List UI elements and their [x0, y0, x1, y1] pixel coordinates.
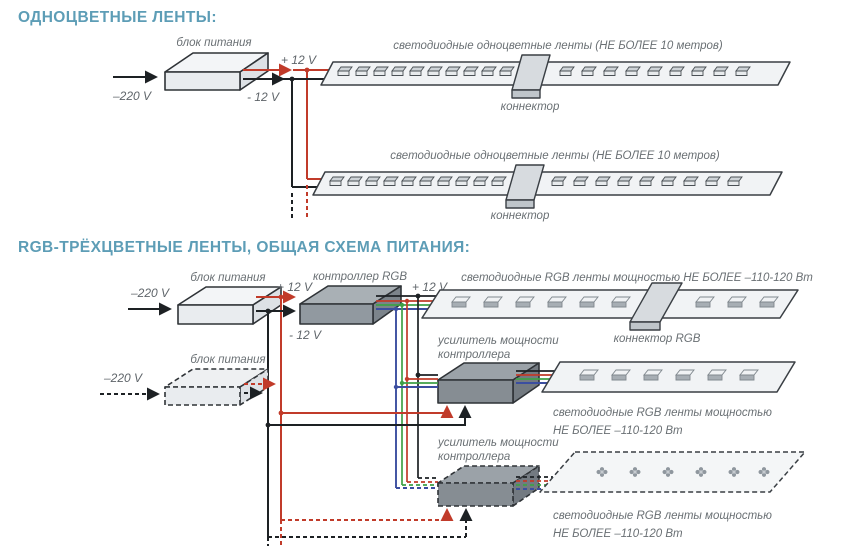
rgb-strip2-label-line2: НЕ БОЛЕЕ –110-120 Вт [553, 425, 683, 437]
section2-title: RGB-ТРЁХЦВЕТНЫЕ ЛЕНТЫ, ОБЩАЯ СХЕМА ПИТАН… [18, 239, 470, 256]
rgb-strip3-label-line1: светодиодные RGB ленты мощностью [553, 510, 772, 522]
psu2-label: блок питания [190, 272, 265, 284]
rgb-strip2-label-line1: светодиодные RGB ленты мощностью [553, 407, 772, 419]
psu2-minus-label: - 12 V [289, 328, 322, 342]
mono-led-strip-2 [313, 165, 782, 208]
amplifier-box-2-dashed [438, 466, 539, 506]
psu2-plus-label: + 12 V [277, 280, 313, 294]
mains3-label: –220 V [103, 371, 143, 385]
mains-input-1: –220 V [112, 77, 156, 103]
controller-output-wires [376, 294, 438, 488]
psu1-label: блок питания [176, 37, 251, 49]
amp1-power-feed [266, 407, 465, 427]
strip1-label: светодиодные одноцветные ленты (НЕ БОЛЕЕ… [393, 40, 723, 52]
amp2-power-feed [268, 510, 466, 546]
diagram-canvas: ОДНОЦВЕТНЫЕ ЛЕНТЫ: блок питания –220 V +… [0, 0, 850, 548]
psu-box-3-dashed [165, 369, 268, 405]
psu-box-1 [165, 53, 268, 90]
psu1-plus-label: + 12 V [281, 53, 317, 67]
rgb-strip1-label: светодиодные RGB ленты мощностью НЕ БОЛЕ… [461, 272, 813, 284]
amp2-label-line2: контроллера [438, 451, 510, 463]
amp2-label-line1: усилитель мощности [437, 437, 559, 449]
mono-led-strip-1 [321, 55, 790, 98]
rgb-led-strip-1 [422, 283, 798, 330]
amp1-label-line1: усилитель мощности [437, 335, 559, 347]
rgb-led-strip-3-dashed [540, 452, 805, 492]
psu3-label: блок питания [190, 354, 265, 366]
mains-input-2: –220 V [128, 286, 170, 309]
section1-title: ОДНОЦВЕТНЫЕ ЛЕНТЫ: [18, 9, 217, 26]
rgb-led-strip-2 [542, 362, 795, 392]
rgb-connector-label: коннектор RGB [614, 333, 701, 345]
connector1-label: коннектор [501, 101, 560, 113]
wiring-diagram: ОДНОЦВЕТНЫЕ ЛЕНТЫ: блок питания –220 V +… [0, 0, 850, 548]
rgb-strip3-label-line2: НЕ БОЛЕЕ –110-120 Вт [553, 528, 683, 540]
controller-label: контроллер RGB [313, 271, 407, 283]
mains2-label: –220 V [130, 286, 170, 300]
amp1-label-line2: контроллера [438, 349, 510, 361]
connector2-label: коннектор [491, 210, 550, 222]
mains1-label: –220 V [112, 89, 152, 103]
strip2-label: светодиодные одноцветные ленты (НЕ БОЛЕЕ… [390, 150, 720, 162]
mains-input-3: –220 V [100, 371, 158, 394]
psu1-minus-label: - 12 V [247, 90, 280, 104]
psu-box-2 [178, 287, 281, 324]
